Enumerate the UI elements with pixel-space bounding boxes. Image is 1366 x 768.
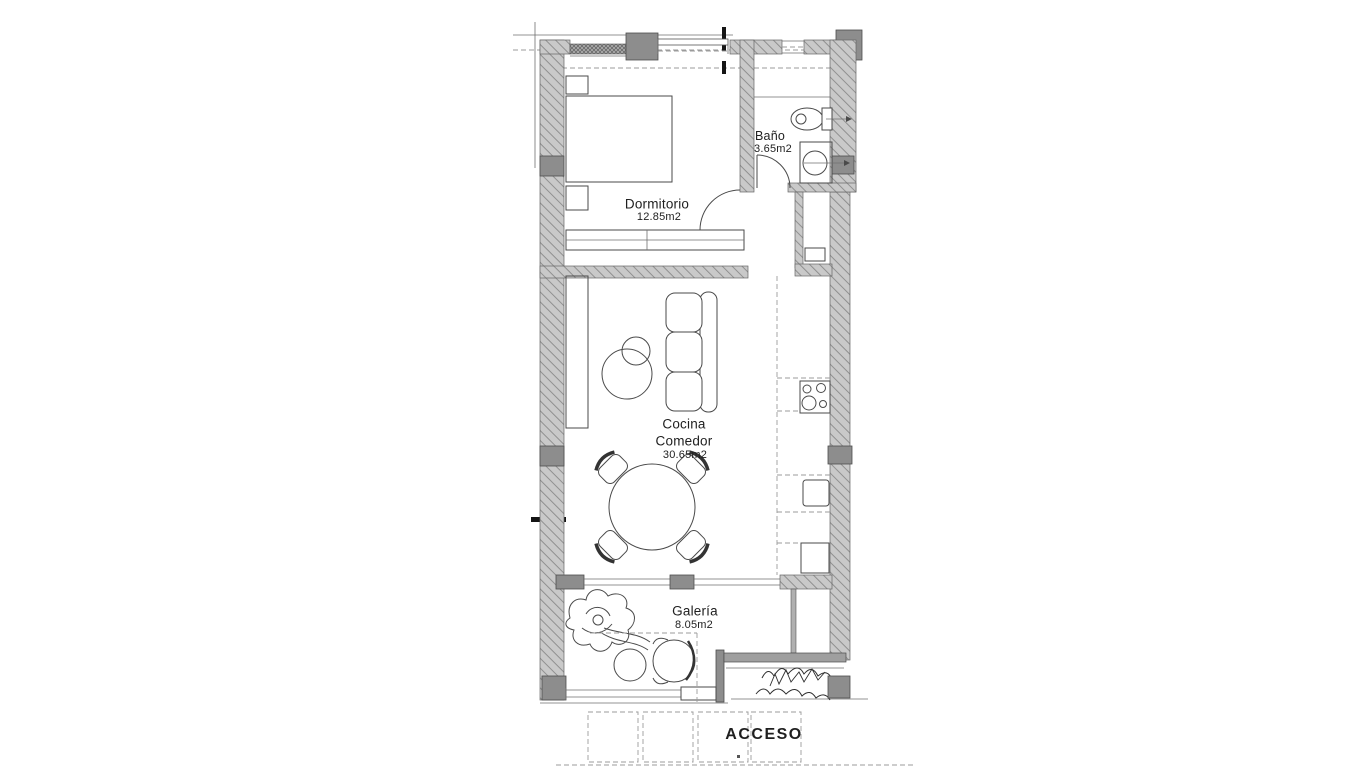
entry-door-frame	[791, 589, 796, 653]
pillar	[542, 676, 566, 700]
outside-entrance	[556, 668, 914, 765]
bathroom-label: Baño	[755, 129, 785, 143]
paving-tile	[643, 712, 693, 762]
bedroom-window	[570, 44, 626, 54]
bedroom-label: Dormitorio	[625, 197, 689, 212]
garden-chair-icon	[653, 638, 695, 684]
nightstand-icon	[566, 186, 588, 210]
nightstand-icon	[566, 76, 588, 94]
pillar	[540, 156, 564, 176]
armchair-icon	[602, 337, 652, 399]
galeria-window	[566, 687, 716, 700]
kitchen-cabinet-icon	[801, 543, 829, 573]
kitchen-sink-icon	[803, 480, 829, 506]
bathroom-bottom-wall	[788, 183, 856, 192]
bedroom-area: 12.85m2	[637, 211, 681, 223]
bathroom-door-arc	[757, 155, 790, 188]
section-mark-icon	[722, 61, 726, 74]
entry-pillar	[828, 676, 850, 698]
bedroom-door-arc	[700, 190, 740, 230]
floor-plan-drawing	[0, 0, 1366, 768]
pillar	[828, 446, 852, 464]
pillar	[832, 156, 854, 174]
small-top-opening	[782, 41, 806, 53]
left-party-wall	[540, 40, 564, 700]
survey-dot	[737, 755, 740, 758]
plant-icon	[566, 590, 650, 652]
kitchen-label-line2: Comedor	[656, 434, 713, 449]
dining-chair-icon	[592, 448, 629, 485]
kitchen-label-line1: Cocina	[662, 417, 705, 432]
bathroom-left-wall	[740, 40, 754, 192]
kitchen-area: 30.65m2	[663, 449, 707, 461]
access-label: ACCESO	[725, 726, 802, 744]
dining-table-icon	[609, 464, 695, 550]
right-wall	[830, 192, 850, 660]
dining-chair-icon	[674, 528, 711, 565]
gallery-label: Galería	[672, 604, 718, 619]
entry-step	[724, 653, 846, 662]
gallery-area: 8.05m2	[675, 619, 713, 631]
top-glazed-window	[658, 39, 728, 54]
pillar	[626, 33, 658, 60]
floor-plan-canvas: Baño 3.65m2 Dormitorio 12.85m2 Cocina Co…	[0, 0, 1366, 768]
paving-tile	[588, 712, 638, 762]
page-background: { "floorplan": { "rooms": { "bano": { "n…	[0, 0, 1366, 768]
wardrobe-icon	[566, 230, 744, 250]
garden-table-icon	[614, 649, 646, 681]
sideboard-icon	[566, 276, 588, 428]
duct	[805, 248, 825, 261]
dining-chair-icon	[592, 528, 629, 565]
bed-icon	[566, 96, 672, 182]
bedroom-furniture	[566, 76, 744, 250]
bathroom-area: 3.65m2	[754, 143, 792, 155]
hob-icon	[800, 381, 830, 413]
sofa-icon	[666, 292, 717, 412]
pillar	[540, 446, 564, 466]
kitchen	[777, 276, 830, 575]
galeria-separation-wall	[716, 650, 724, 702]
